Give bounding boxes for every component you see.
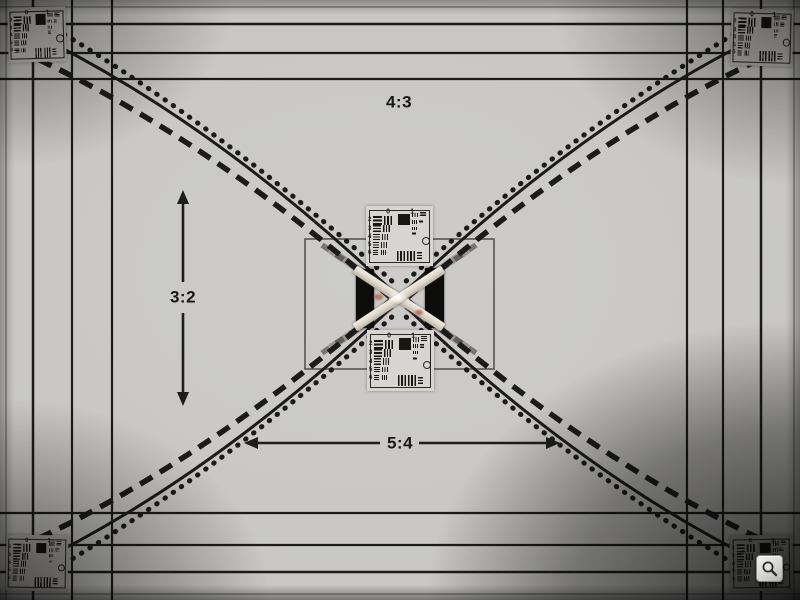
usaf-element-number: 3: [732, 554, 735, 559]
usaf-bars: [417, 252, 422, 259]
usaf-bars: [55, 548, 59, 551]
tape-glint: [415, 310, 423, 315]
usaf-group-number: 0: [25, 537, 28, 543]
usaf-element-number: 6: [369, 375, 372, 381]
usaf-bars: [23, 25, 29, 32]
usaf-bars: [22, 552, 29, 559]
usaf-bars: [22, 33, 27, 39]
usaf-element-number: 2: [732, 546, 735, 551]
usaf-bars: [381, 242, 386, 247]
usaf-element-number: 3: [369, 350, 372, 356]
usaf-bars: [745, 569, 750, 574]
usaf-bars: [13, 576, 18, 581]
usaf-bars: [413, 337, 419, 342]
usaf-element-number: 5: [732, 42, 735, 48]
usaf-bars: [412, 213, 418, 218]
usaf-bars: [381, 250, 386, 255]
usaf-bars: [397, 251, 405, 262]
usaf-bars: [773, 541, 779, 546]
usaf-bars: [52, 49, 57, 55]
usaf-bars: [57, 541, 62, 545]
usaf-bars: [420, 344, 424, 348]
usaf-element-number: 6: [10, 48, 13, 53]
usaf-target-bottom-left: 0123456: [6, 534, 69, 591]
usaf-bars: [412, 220, 417, 224]
usaf-bars: [408, 375, 416, 386]
usaf-target-center-bottom: 0123456: [367, 330, 434, 391]
usaf-black-square: [398, 214, 409, 225]
usaf-element-number: 6: [8, 576, 11, 581]
usaf-element-number: 2: [9, 18, 12, 23]
usaf-bars: [744, 577, 749, 582]
tape-highlight: [388, 291, 408, 304]
usaf-bars: [420, 212, 425, 216]
usaf-bars: [780, 23, 784, 27]
usaf-bars: [384, 349, 391, 357]
usaf-bars: [745, 561, 751, 567]
usaf-element-number: 4: [732, 562, 735, 567]
usaf-bars: [374, 340, 383, 349]
usaf-circle-mark: [422, 237, 430, 245]
usaf-bars: [44, 48, 51, 58]
usaf-element-number: 3: [733, 27, 736, 33]
usaf-bars: [737, 553, 744, 560]
usaf-bars: [747, 544, 755, 553]
usaf-bars: [52, 578, 57, 584]
usaf-bars: [383, 358, 389, 364]
usaf-bars: [13, 561, 19, 567]
usaf-bars: [412, 232, 416, 235]
usaf-bars: [747, 27, 754, 34]
usaf-bars: [413, 357, 417, 360]
usaf-bars: [779, 547, 783, 550]
usaf-bars: [374, 349, 381, 357]
usaf-bars: [383, 225, 390, 233]
usaf-bars: [385, 340, 393, 349]
usaf-bars: [774, 29, 778, 32]
usaf-bars: [373, 250, 378, 255]
usaf-element-number: 2: [8, 545, 11, 550]
usaf-group-number: 0: [749, 538, 752, 544]
usaf-bars: [49, 548, 54, 552]
usaf-element-number: 3: [10, 26, 13, 31]
usaf-bars: [413, 351, 417, 354]
usaf-bars: [374, 375, 379, 380]
usaf-element-number: 4: [369, 359, 372, 365]
usaf-element-number: 4: [733, 35, 736, 41]
usaf-bars: [737, 544, 745, 553]
usaf-bars: [382, 375, 387, 380]
usaf-bars: [49, 555, 53, 558]
aspect-label-3-2: 3:2: [170, 289, 196, 306]
usaf-bars: [19, 576, 24, 581]
usaf-bars: [737, 561, 743, 567]
usaf-bars: [23, 16, 30, 24]
usaf-bars: [48, 26, 52, 29]
usaf-bars: [418, 377, 423, 384]
usaf-bars: [781, 540, 786, 544]
usaf-group-number: 0: [386, 209, 390, 216]
test-chart-photo: 4:3 3:2 5:4 0123456012345601234560123456…: [0, 0, 800, 600]
usaf-bars: [759, 51, 766, 61]
usaf-bars: [48, 31, 51, 34]
usaf-bars: [14, 25, 21, 32]
usaf-black-square: [761, 17, 772, 28]
usaf-black-square: [36, 543, 47, 554]
usaf-target-center-top: 0123456: [366, 206, 433, 266]
usaf-bars: [774, 34, 777, 37]
tape-glint: [374, 294, 383, 300]
usaf-bars: [14, 16, 22, 24]
usaf-element-number: 2: [369, 341, 372, 347]
usaf-bars: [20, 569, 25, 574]
usaf-bars: [48, 20, 52, 24]
usaf-element-number: 6: [732, 50, 735, 56]
usaf-bars: [737, 51, 742, 56]
usaf-bars: [13, 568, 18, 573]
aspect-label-4-3: 4:3: [386, 94, 412, 111]
usaf-bars: [374, 367, 380, 372]
usaf-black-square: [399, 338, 410, 350]
usaf-bars: [34, 577, 41, 587]
aspect-label-5-4: 5:4: [387, 435, 413, 452]
usaf-bars: [374, 358, 380, 364]
usaf-bars: [21, 41, 26, 46]
usaf-element-number: 5: [368, 242, 371, 248]
usaf-bars: [382, 234, 388, 240]
usaf-bars: [15, 48, 19, 53]
usaf-bars: [773, 548, 778, 552]
usaf-bars: [382, 367, 387, 372]
usaf-bars: [412, 227, 416, 230]
usaf-bars: [738, 35, 744, 41]
usaf-bars: [748, 18, 756, 27]
usaf-element-number: 2: [368, 217, 371, 223]
usaf-bars: [373, 225, 380, 233]
usaf-black-square: [760, 542, 771, 553]
usaf-bars: [777, 53, 782, 59]
usaf-bars: [35, 48, 42, 58]
usaf-bars: [49, 560, 52, 563]
usaf-bars: [54, 12, 59, 16]
usaf-bars: [398, 375, 406, 386]
usaf-bars: [774, 16, 780, 21]
usaf-bars: [53, 19, 57, 22]
usaf-bars: [738, 43, 743, 48]
usaf-element-number: 6: [368, 250, 371, 256]
usaf-element-number: 6: [732, 577, 735, 582]
usaf-bars: [373, 216, 382, 225]
usaf-circle-mark: [56, 34, 63, 42]
usaf-element-number: 4: [8, 561, 11, 566]
usaf-bars: [421, 336, 426, 340]
usaf-bars: [14, 33, 20, 39]
usaf-bars: [407, 251, 415, 262]
usaf-bars: [738, 17, 746, 26]
usaf-element-number: 3: [368, 226, 371, 232]
usaf-bars: [373, 234, 379, 240]
usaf-bars: [738, 26, 745, 33]
usaf-element-number: 5: [8, 568, 11, 573]
zoom-button[interactable]: [756, 555, 783, 582]
usaf-element-number: 4: [10, 34, 13, 39]
usaf-bars: [21, 48, 25, 53]
usaf-target-top-left: 0123456: [7, 6, 66, 62]
usaf-bars: [13, 552, 20, 559]
usaf-element-number: 2: [733, 19, 736, 25]
usaf-bars: [737, 577, 742, 582]
usaf-element-number: 3: [8, 553, 11, 558]
usaf-group-number: 0: [387, 333, 391, 340]
usaf-bars: [746, 553, 753, 560]
usaf-bars: [47, 13, 52, 18]
usaf-bars: [745, 43, 750, 48]
usaf-bars: [44, 577, 51, 587]
usaf-bars: [21, 561, 27, 567]
usaf-bars: [23, 544, 31, 553]
usaf-bars: [373, 242, 379, 247]
usaf-bars: [746, 35, 752, 41]
usaf-bars: [774, 23, 779, 27]
usaf-black-square: [35, 14, 45, 25]
usaf-element-number: 5: [732, 569, 735, 574]
usaf-element-number: 5: [10, 41, 13, 46]
usaf-bars: [737, 569, 742, 574]
usaf-bars: [768, 52, 775, 62]
usaf-bars: [13, 544, 21, 553]
magnifier-icon: [761, 560, 778, 577]
usaf-bars: [419, 220, 423, 224]
usaf-bars: [15, 41, 20, 46]
usaf-element-number: 4: [368, 234, 371, 240]
usaf-bars: [413, 344, 418, 348]
usaf-element-number: 5: [369, 367, 372, 373]
usaf-bars: [49, 541, 55, 546]
usaf-target-top-right: 0123456: [730, 8, 793, 67]
usaf-group-number: 0: [25, 10, 28, 16]
usaf-bars: [782, 15, 787, 19]
photo-layer: 4:3 3:2 5:4 0123456012345601234560123456…: [0, 0, 800, 600]
usaf-bars: [384, 216, 392, 225]
usaf-bars: [744, 51, 749, 56]
